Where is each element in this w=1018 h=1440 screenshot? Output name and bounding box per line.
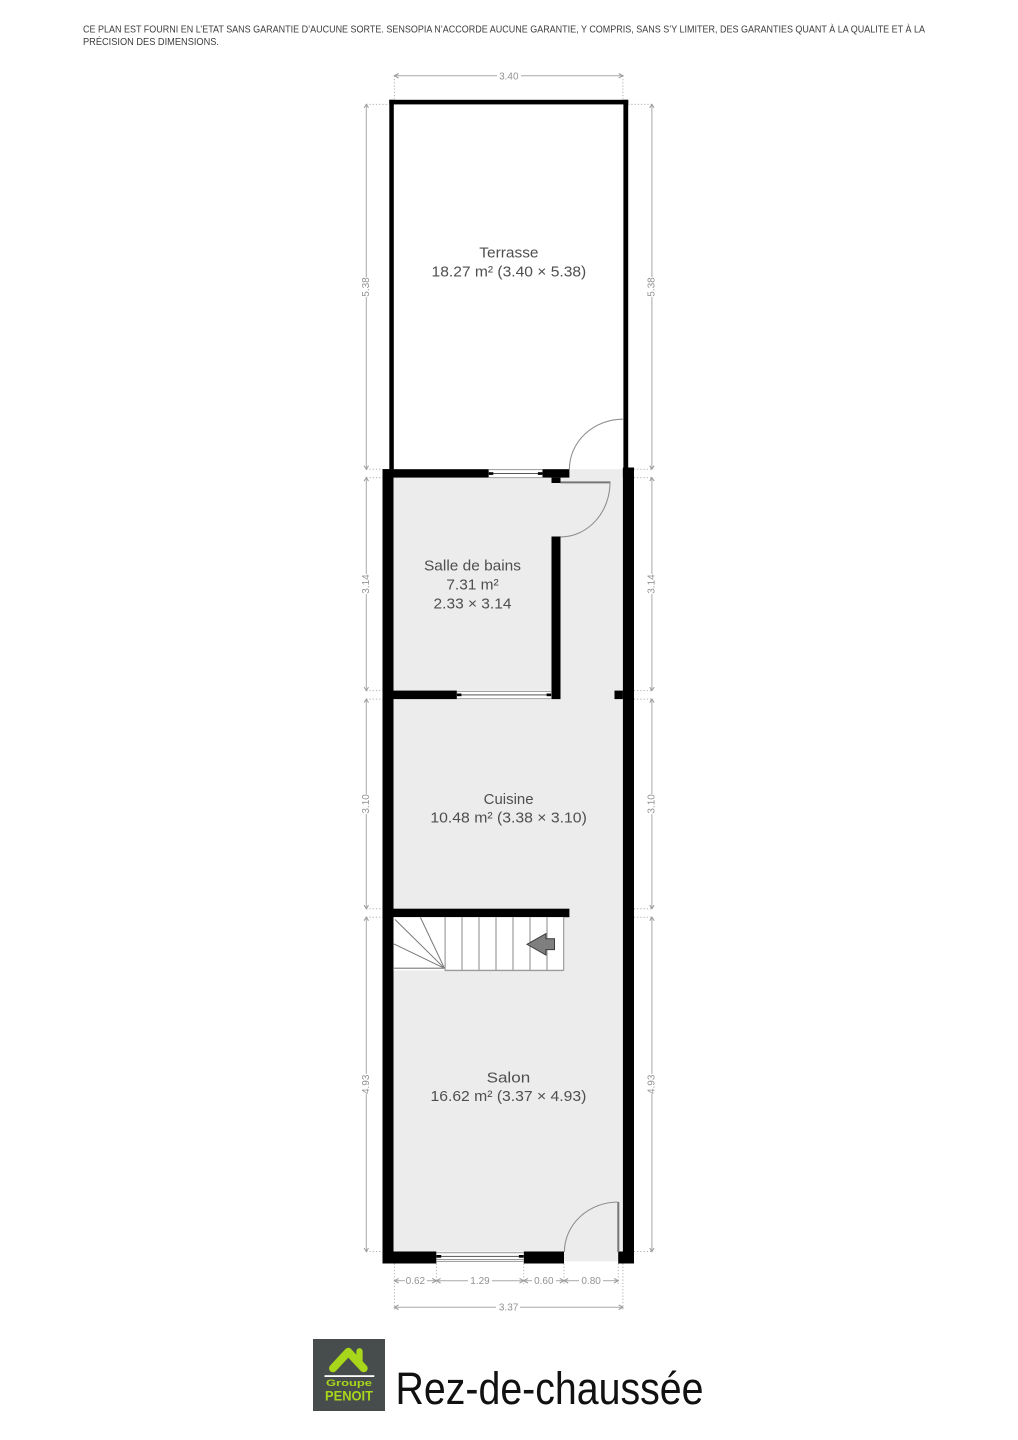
svg-text:3.14: 3.14 bbox=[361, 574, 372, 594]
svg-text:3.10: 3.10 bbox=[646, 794, 657, 814]
svg-text:Salle de bains: Salle de bains bbox=[424, 558, 521, 575]
svg-text:0.80: 0.80 bbox=[581, 1276, 601, 1287]
svg-text:5.38: 5.38 bbox=[646, 277, 657, 297]
svg-text:1.29: 1.29 bbox=[470, 1276, 490, 1287]
svg-text:0.62: 0.62 bbox=[406, 1276, 426, 1287]
svg-text:2.33 × 3.14: 2.33 × 3.14 bbox=[434, 596, 512, 613]
svg-text:7.31 m²: 7.31 m² bbox=[446, 577, 498, 594]
svg-text:3.40: 3.40 bbox=[499, 71, 519, 82]
svg-text:10.48 m² (3.38 × 3.10): 10.48 m² (3.38 × 3.10) bbox=[430, 810, 587, 827]
svg-text:Cuisine: Cuisine bbox=[484, 791, 534, 808]
svg-text:3.10: 3.10 bbox=[361, 794, 372, 814]
svg-text:0.60: 0.60 bbox=[534, 1276, 554, 1287]
svg-text:16.62 m² (3.37 × 4.93): 16.62 m² (3.37 × 4.93) bbox=[431, 1088, 587, 1105]
svg-text:PENOIT: PENOIT bbox=[325, 1388, 374, 1403]
svg-text:4.93: 4.93 bbox=[361, 1074, 372, 1094]
svg-text:3.14: 3.14 bbox=[646, 574, 657, 594]
svg-text:Terrasse: Terrasse bbox=[479, 245, 538, 262]
svg-text:Salon: Salon bbox=[487, 1069, 531, 1086]
svg-text:5.38: 5.38 bbox=[361, 277, 372, 297]
svg-text:PRÉCISION DES DIMENSIONS.: PRÉCISION DES DIMENSIONS. bbox=[83, 35, 219, 48]
svg-text:4.93: 4.93 bbox=[646, 1074, 657, 1094]
svg-text:18.27 m² (3.40 × 5.38): 18.27 m² (3.40 × 5.38) bbox=[432, 264, 587, 281]
svg-text:Rez-de-chaussée: Rez-de-chaussée bbox=[396, 1363, 704, 1414]
svg-text:3.37: 3.37 bbox=[499, 1303, 519, 1314]
svg-text:CE PLAN EST FOURNI EN L’ETAT S: CE PLAN EST FOURNI EN L’ETAT SANS GARANT… bbox=[83, 22, 925, 35]
